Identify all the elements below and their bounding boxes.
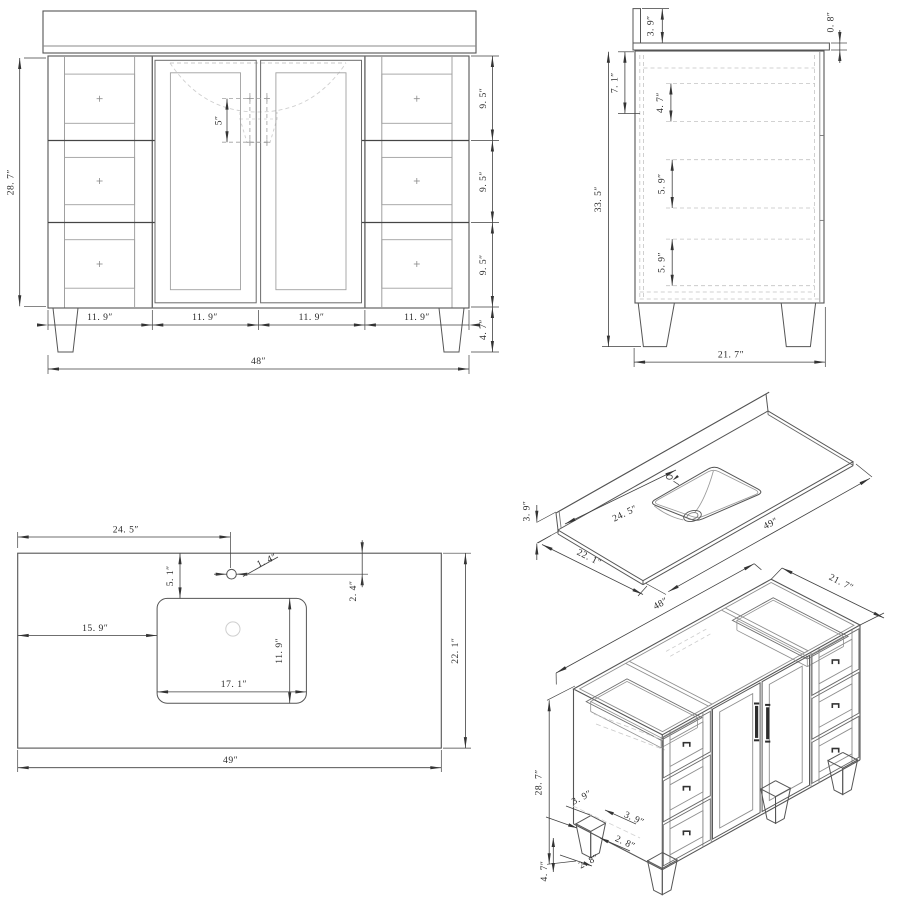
svg-text:9. 5″: 9. 5″ <box>478 254 489 275</box>
svg-text:3. 9″: 3. 9″ <box>646 15 657 36</box>
svg-text:24. 5″: 24. 5″ <box>113 525 139 536</box>
svg-text:15. 9″: 15. 9″ <box>82 623 108 634</box>
svg-text:49″: 49″ <box>223 755 238 766</box>
svg-text:4. 7″: 4. 7″ <box>655 92 666 113</box>
svg-text:21. 7″: 21. 7″ <box>718 350 744 361</box>
svg-text:5. 9″: 5. 9″ <box>657 173 668 194</box>
svg-text:0. 8″: 0. 8″ <box>826 12 837 33</box>
svg-text:11. 9″: 11. 9″ <box>87 312 113 323</box>
svg-text:9. 5″: 9. 5″ <box>478 171 489 192</box>
svg-text:11. 9″: 11. 9″ <box>274 638 285 664</box>
svg-text:11. 9″: 11. 9″ <box>192 312 218 323</box>
svg-text:33. 5″: 33. 5″ <box>593 186 604 212</box>
svg-text:4. 7″: 4. 7″ <box>539 861 550 882</box>
svg-text:17. 1″: 17. 1″ <box>221 679 247 690</box>
svg-text:5″: 5″ <box>214 116 225 126</box>
svg-text:28. 7″: 28. 7″ <box>6 169 17 195</box>
svg-text:28. 7″: 28. 7″ <box>534 769 545 795</box>
svg-text:4. 7″: 4. 7″ <box>478 319 489 340</box>
svg-text:48″: 48″ <box>251 356 266 367</box>
svg-text:7. 1″: 7. 1″ <box>610 72 621 93</box>
svg-text:9. 5″: 9. 5″ <box>478 88 489 109</box>
svg-text:11. 9″: 11. 9″ <box>299 312 325 323</box>
svg-text:5. 1″: 5. 1″ <box>165 565 176 586</box>
svg-text:5. 9″: 5. 9″ <box>657 252 668 273</box>
svg-text:3. 9″: 3. 9″ <box>522 501 533 522</box>
svg-text:2. 4″: 2. 4″ <box>348 581 359 602</box>
svg-text:11. 9″: 11. 9″ <box>404 312 430 323</box>
svg-text:22. 1″: 22. 1″ <box>450 638 461 664</box>
